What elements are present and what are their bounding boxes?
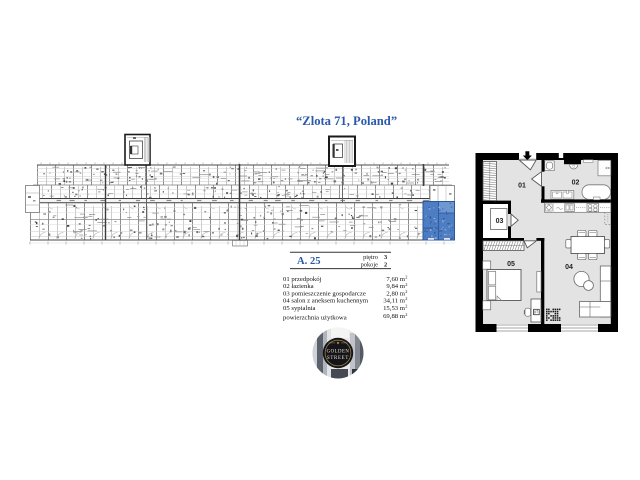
svg-text:04: 04 xyxy=(565,264,573,271)
svg-text:05 sypialnia: 05 sypialnia xyxy=(283,305,316,312)
svg-text:piętro: piętro xyxy=(363,254,378,261)
svg-text:2: 2 xyxy=(384,262,387,269)
svg-text:01: 01 xyxy=(518,183,526,190)
svg-text:05: 05 xyxy=(507,261,515,268)
svg-text:2: 2 xyxy=(405,312,407,317)
svg-text:34,11 m: 34,11 m xyxy=(383,298,405,305)
svg-text:2: 2 xyxy=(405,303,407,308)
svg-text:powierzchnia użytkowa: powierzchnia użytkowa xyxy=(283,314,347,321)
svg-text:A. 25: A. 25 xyxy=(297,256,321,267)
svg-text:pokoje: pokoje xyxy=(361,262,379,269)
svg-text:7,60 m: 7,60 m xyxy=(386,276,405,283)
svg-text:2: 2 xyxy=(405,296,407,301)
svg-text:03: 03 xyxy=(496,218,504,225)
svg-text:01 przedpokój: 01 przedpokój xyxy=(283,276,322,283)
svg-text:03 pomieszczenie gospodarcze: 03 pomieszczenie gospodarcze xyxy=(283,290,366,297)
svg-text:“Zlota 71, Poland”: “Zlota 71, Poland” xyxy=(296,114,397,128)
svg-text:GOLDEN: GOLDEN xyxy=(327,349,350,354)
svg-text:69,88 m: 69,88 m xyxy=(383,313,406,320)
svg-text:3: 3 xyxy=(384,254,387,261)
svg-text:2: 2 xyxy=(405,282,407,287)
svg-text:2: 2 xyxy=(405,289,407,294)
svg-text:2,80 m: 2,80 m xyxy=(386,290,405,297)
svg-text:02: 02 xyxy=(572,180,580,187)
svg-text:15,53 m: 15,53 m xyxy=(383,305,406,312)
svg-text:STREET: STREET xyxy=(327,356,349,361)
svg-text:02 łazienka: 02 łazienka xyxy=(283,283,314,290)
svg-text:9,84 m: 9,84 m xyxy=(386,283,405,290)
svg-text:2: 2 xyxy=(405,275,407,280)
svg-text:04 salon z aneksem kuchennym: 04 salon z aneksem kuchennym xyxy=(283,298,369,305)
